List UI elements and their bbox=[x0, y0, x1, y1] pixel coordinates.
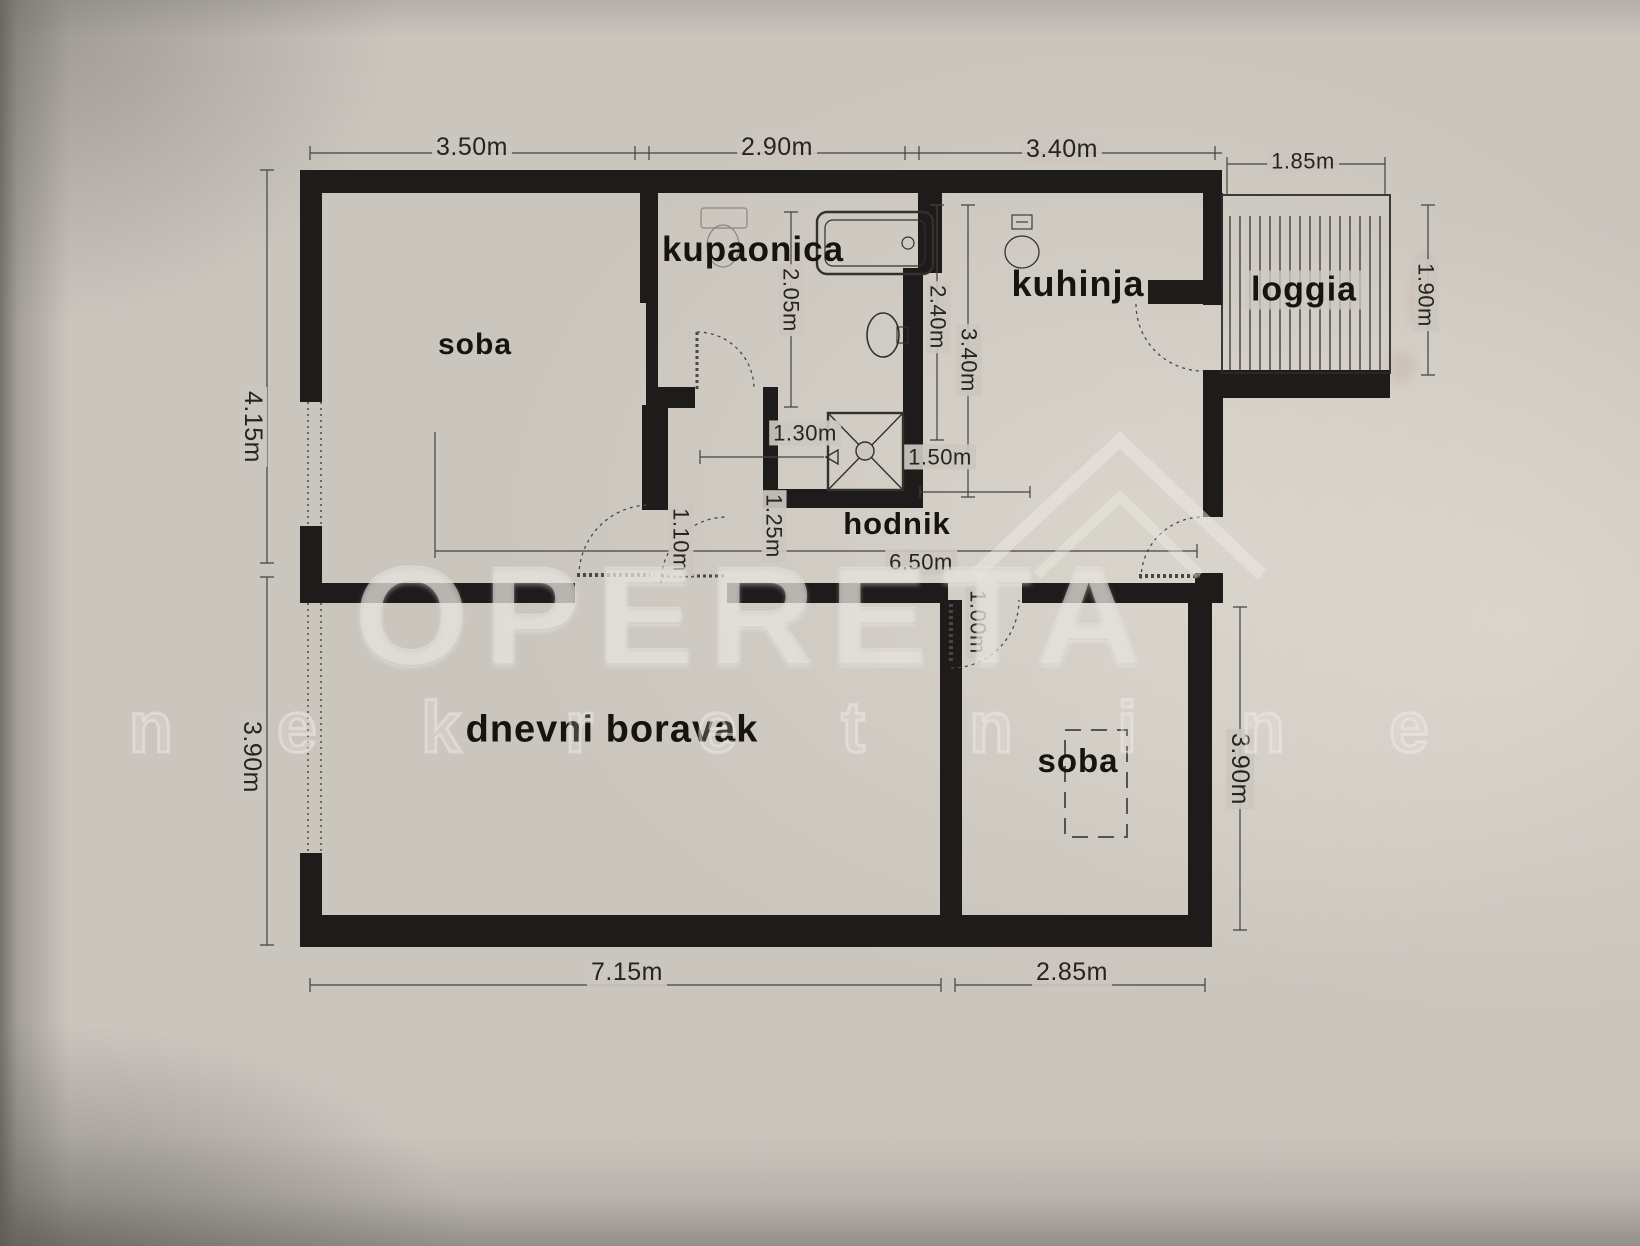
room-label-loggia: loggia bbox=[1245, 271, 1363, 310]
dim-bath-width: 2.40m bbox=[925, 281, 950, 353]
dim-right-loggia: 1.90m bbox=[1413, 259, 1438, 331]
dim-right-soba2: 3.90m bbox=[1226, 729, 1254, 809]
dim-bottom-soba: 2.85m bbox=[1032, 958, 1112, 986]
wall-kitchen-door-stub bbox=[1148, 280, 1203, 304]
wall-hall-south-b bbox=[727, 583, 948, 603]
dim-top-soba: 3.50m bbox=[432, 133, 512, 161]
dim-left-upper: 4.15m bbox=[239, 387, 267, 467]
dim-kitchen-depth: 3.40m bbox=[956, 324, 981, 396]
dim-bath-depth: 2.05m bbox=[778, 264, 803, 336]
dim-hall-east: 1.50m bbox=[904, 444, 976, 469]
wall-bath-west-lower bbox=[646, 298, 658, 390]
wall-bottom bbox=[300, 915, 1210, 947]
room-label-kupaonica: kupaonica bbox=[662, 230, 844, 270]
dim-hall-length: 6.50m bbox=[885, 549, 957, 574]
walls bbox=[300, 170, 1390, 947]
dim-hall-width: 1.25m bbox=[761, 490, 786, 562]
room-label-soba1: soba bbox=[438, 328, 512, 362]
wall-hall-south-a bbox=[312, 583, 575, 603]
room-label-hodnik: hodnik bbox=[843, 506, 951, 542]
dim-line-hall-east bbox=[920, 486, 1030, 498]
washbasin bbox=[867, 313, 908, 357]
dim-top-kuhinja: 3.40m bbox=[1022, 135, 1102, 163]
kitchen-sink bbox=[1005, 215, 1039, 268]
wall-hall-east bbox=[1203, 396, 1223, 517]
wall-bath-west-upper bbox=[640, 193, 658, 303]
wall-soba2-east bbox=[1188, 598, 1212, 947]
door-soba1 bbox=[577, 505, 650, 576]
dim-bottom-dnevni: 7.15m bbox=[587, 958, 667, 986]
wall-bath-door-stub bbox=[646, 387, 695, 408]
door-bathroom bbox=[697, 332, 754, 389]
room-label-soba2: soba bbox=[1037, 742, 1118, 780]
wall-hall-south-c bbox=[1022, 583, 1212, 603]
window-dnevni bbox=[308, 603, 321, 853]
dim-top-loggia: 1.85m bbox=[1267, 148, 1339, 173]
floor-plan-drawing bbox=[0, 0, 1640, 1246]
window-soba1 bbox=[308, 402, 321, 526]
wall-dnevni-soba2-divider bbox=[940, 600, 962, 930]
wall-kitchen-east bbox=[1203, 193, 1223, 305]
dim-door-dnevni: 1.10m bbox=[668, 504, 693, 576]
room-label-kuhinja: kuhinja bbox=[1011, 263, 1144, 305]
dim-line-niche bbox=[700, 450, 824, 464]
dim-top-kupaonica: 2.90m bbox=[737, 133, 817, 161]
wall-loggia-bottom bbox=[1203, 370, 1390, 398]
floorplan-photo: soba kupaonica kuhinja loggia hodnik dne… bbox=[0, 0, 1640, 1246]
dim-left-lower: 3.90m bbox=[238, 717, 266, 797]
door-entrance bbox=[1139, 517, 1203, 579]
door-loggia bbox=[1136, 304, 1203, 371]
dim-line-left bbox=[260, 170, 274, 945]
wall-vestibule-west bbox=[642, 405, 668, 510]
dim-door-soba2: 1.00m bbox=[965, 586, 990, 658]
doors bbox=[577, 304, 1203, 668]
room-label-dnevni-boravak: dnevni boravak bbox=[466, 709, 759, 752]
wall-top bbox=[300, 170, 1222, 193]
windows bbox=[308, 402, 321, 853]
wall-left-upper bbox=[300, 170, 322, 402]
dim-niche-width: 1.30m bbox=[769, 420, 841, 445]
